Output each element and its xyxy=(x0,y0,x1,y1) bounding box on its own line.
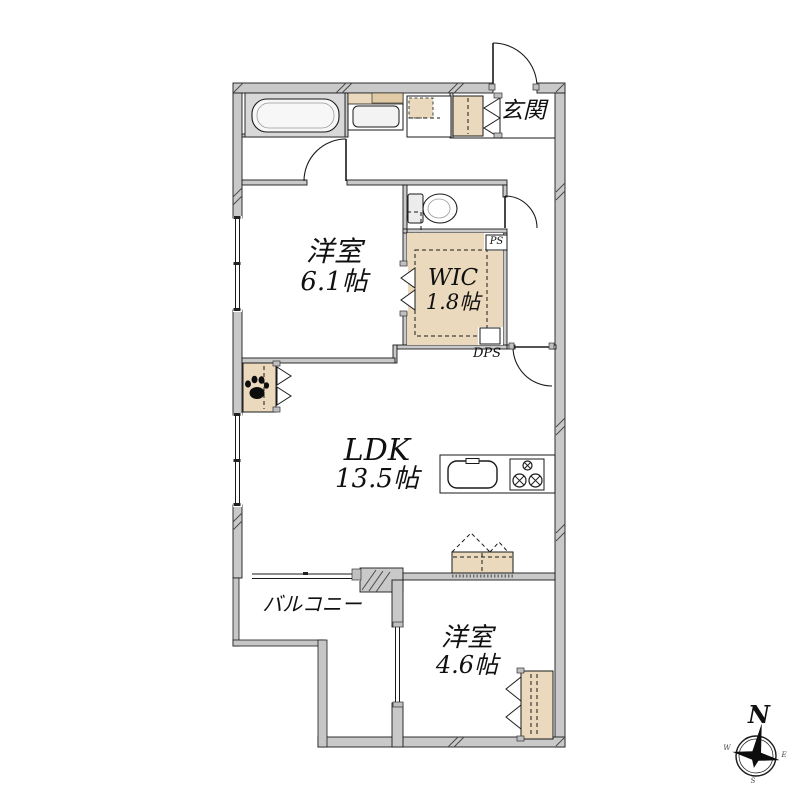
kitchen-counter xyxy=(440,455,555,493)
bedroom2-size: 4.6帖 xyxy=(412,653,522,678)
pet-storage xyxy=(243,361,291,412)
washing-machine-pan-icon xyxy=(407,96,451,137)
washroom-door-arc xyxy=(304,139,346,181)
toilet-room xyxy=(407,194,537,233)
ldk-name: LDK xyxy=(322,435,432,467)
toilet-icon xyxy=(407,194,457,233)
bedroom1-size: 6.1帖 xyxy=(284,269,384,296)
wic-size: 1.8帖 xyxy=(413,291,493,313)
gas-stove-icon xyxy=(510,459,544,490)
window-bedroom1-left xyxy=(233,216,242,312)
entry-door-arc xyxy=(489,43,539,90)
compass-south-label: S xyxy=(748,778,758,785)
compass-north-label: N xyxy=(742,702,776,727)
compass-east-label: E xyxy=(779,752,789,759)
bedroom1-name: 洋室 xyxy=(284,237,384,266)
ldk-door-arc xyxy=(509,343,554,386)
vanity-basin-icon xyxy=(348,93,403,130)
kitchen-sink-icon xyxy=(448,459,497,489)
balcony-label: バルコニー xyxy=(244,594,380,615)
bedroom2-name: 洋室 xyxy=(412,625,522,652)
shoe-cabinet-icon xyxy=(453,93,502,138)
compass-west-label: W xyxy=(722,745,732,752)
window-bedroom2-balcony xyxy=(393,622,403,707)
ps-label: PS xyxy=(487,237,506,248)
floor-plan-canvas: 玄関 洋室 6.1帖 WIC 1.8帖 PS DPS LDK 13.5帖 バルコ… xyxy=(0,0,800,800)
window-ldk-balcony xyxy=(251,569,361,581)
dps-duct-box xyxy=(480,328,500,344)
bathroom xyxy=(245,93,345,137)
floor-plan-drawing xyxy=(0,0,800,800)
bedroom2-closet xyxy=(506,668,553,741)
window-ldk-left xyxy=(233,413,242,507)
washroom-fixtures xyxy=(348,93,451,137)
toilet-door-arc xyxy=(505,196,537,228)
entrance-label: 玄関 xyxy=(497,99,549,123)
wic-name: WIC xyxy=(413,266,493,290)
storage-closet xyxy=(452,533,513,576)
dps-label: DPS xyxy=(464,347,510,361)
ldk-size: 13.5帖 xyxy=(322,466,432,493)
